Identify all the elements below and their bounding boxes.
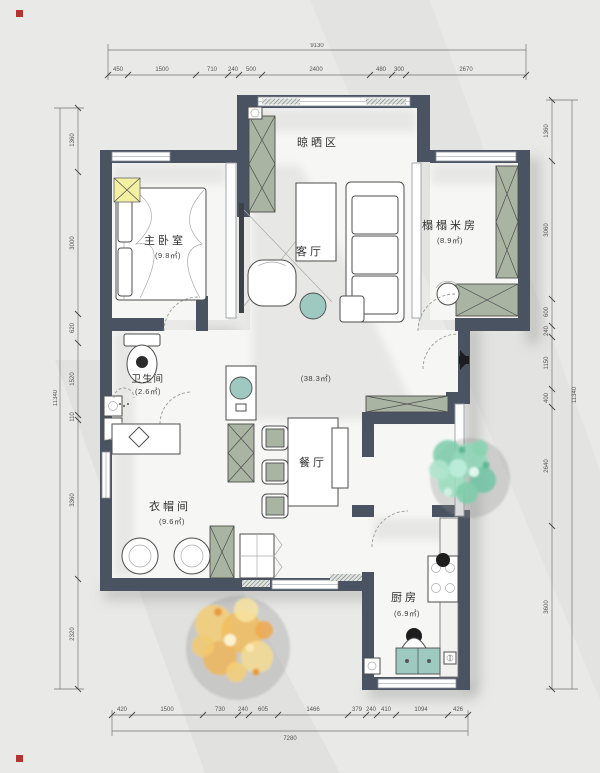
vanity-desk (112, 424, 180, 454)
svg-text:1360: 1360 (544, 124, 550, 138)
svg-text:110: 110 (70, 412, 76, 422)
dimension-top: 9130 450 1500 710 240 500 2400 480 300 2… (105, 43, 529, 80)
cloak-armchair-1 (122, 538, 158, 574)
svg-text:400: 400 (544, 392, 550, 403)
corner-marker-bottom-left (16, 755, 23, 762)
floor-plan-drawing: 晾晒区 主卧室 (9.8㎡) 榻榻米房 (8.9㎡) 客厅 (38.3㎡) 餐厅… (0, 0, 600, 773)
label-dining-room: 餐厅 (299, 455, 327, 469)
label-bathroom-area: (2.6㎡) (135, 387, 161, 396)
svg-text:410: 410 (381, 707, 392, 713)
svg-text:1360: 1360 (70, 133, 76, 147)
hall-cabinet-column (228, 424, 254, 482)
svg-text:2320: 2320 (70, 627, 76, 641)
side-window (102, 452, 110, 498)
svg-text:2670: 2670 (459, 67, 473, 73)
svg-text:240: 240 (228, 67, 239, 73)
stove (428, 553, 458, 602)
label-master-area: (9.8㎡) (155, 251, 181, 260)
label-kitchen: 厨房 (391, 591, 419, 604)
svg-text:1520: 1520 (70, 372, 76, 386)
svg-text:2640: 2640 (544, 459, 550, 473)
floor-drain (364, 658, 380, 674)
sofa (340, 182, 404, 322)
dining-chairs (262, 426, 288, 518)
cloak-wardrobe (210, 526, 234, 578)
svg-text:1094: 1094 (414, 707, 428, 713)
svg-text:426: 426 (453, 707, 464, 713)
svg-text:1150: 1150 (544, 356, 550, 370)
svg-text:500: 500 (246, 67, 257, 73)
svg-text:3000: 3000 (70, 236, 76, 250)
svg-text:450: 450 (113, 67, 124, 73)
side-table (300, 293, 326, 319)
svg-text:240: 240 (238, 707, 249, 713)
tatami-wardrobe (496, 166, 518, 278)
cloak-armchair-2 (174, 538, 210, 574)
tree-yellow (186, 596, 290, 700)
label-overall-area: (38.3㎡) (301, 374, 332, 383)
washbasin-stand (226, 366, 256, 420)
svg-text:240: 240 (366, 707, 377, 713)
corner-marker-top-left (16, 10, 23, 17)
label-drying-area: 晾晒区 (297, 135, 339, 149)
tatami-window (436, 152, 516, 161)
label-bathroom: 卫生间 (131, 373, 164, 385)
label-cloakroom-area: (9.6㎡) (159, 517, 185, 526)
svg-text:240: 240 (544, 325, 550, 336)
label-master-bedroom: 主卧室 (144, 233, 186, 247)
gas-valve-symbol (444, 652, 456, 664)
label-living-room: 客厅 (296, 244, 324, 258)
svg-text:1500: 1500 (160, 707, 174, 713)
svg-text:1466: 1466 (306, 707, 320, 713)
svg-text:600: 600 (544, 306, 550, 317)
svg-text:605: 605 (258, 707, 269, 713)
balcony-storage-cabinet (248, 107, 275, 212)
svg-text:9130: 9130 (310, 43, 324, 49)
label-tatami-room: 榻榻米房 (422, 218, 478, 232)
living-armchair (248, 260, 296, 306)
svg-text:11340: 11340 (572, 386, 578, 403)
svg-text:3060: 3060 (544, 223, 550, 237)
svg-text:379: 379 (352, 707, 363, 713)
svg-text:11340: 11340 (53, 389, 59, 406)
bedroom-ac-unit (114, 178, 140, 202)
svg-text:300: 300 (394, 67, 405, 73)
svg-text:2400: 2400 (309, 67, 323, 73)
svg-text:420: 420 (117, 707, 128, 713)
svg-text:710: 710 (207, 67, 218, 73)
sideboard (332, 428, 348, 488)
svg-text:480: 480 (376, 67, 387, 73)
floor-plan-sheet: 晾晒区 主卧室 (9.8㎡) 榻榻米房 (8.9㎡) 客厅 (38.3㎡) 餐厅… (0, 0, 600, 773)
shoe-cabinet (366, 396, 448, 412)
svg-text:620: 620 (70, 322, 76, 333)
kitchen-window (378, 679, 456, 688)
svg-text:7280: 7280 (283, 736, 297, 742)
label-cloakroom: 衣帽间 (149, 499, 191, 513)
svg-text:3360: 3360 (70, 493, 76, 507)
svg-text:1500: 1500 (155, 67, 169, 73)
bedroom-window (112, 152, 170, 161)
balcony-window (258, 97, 410, 106)
label-tatami-area: (8.9㎡) (437, 236, 463, 245)
label-kitchen-area: (6.9㎡) (394, 609, 420, 618)
tatami-low-cabinet (456, 284, 518, 316)
svg-text:3600: 3600 (544, 600, 550, 614)
svg-text:730: 730 (215, 707, 226, 713)
